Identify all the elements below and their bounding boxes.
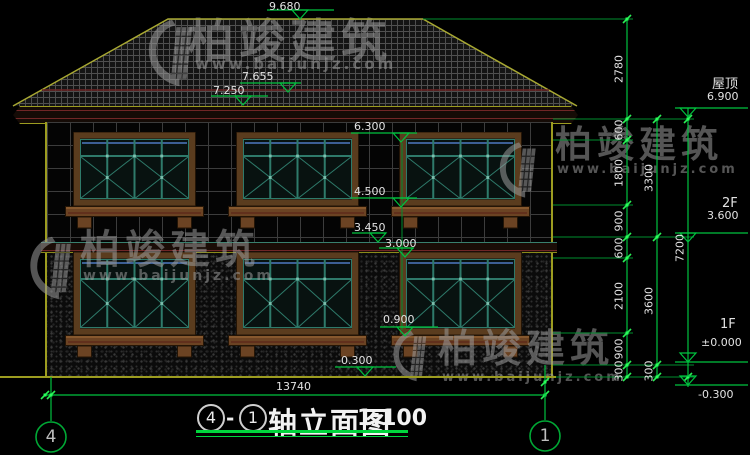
dimension-value: 300 bbox=[644, 361, 655, 382]
dimension-value: 900 bbox=[614, 339, 625, 360]
dimension-value: 2100 bbox=[614, 282, 625, 310]
dimension-value: 900 bbox=[614, 211, 625, 232]
elevation-value: 9.680 bbox=[269, 1, 301, 12]
title-axis-separator: - bbox=[226, 406, 234, 430]
dimension-value: 600 bbox=[614, 119, 625, 140]
elevation-value: 7.655 bbox=[242, 71, 274, 82]
dimension-value: 3300 bbox=[644, 164, 655, 192]
title-axis-end-bubble: 1 bbox=[239, 404, 267, 432]
axis-bubble-1-label: 1 bbox=[540, 426, 551, 446]
title-axis-start-bubble: 4 bbox=[197, 404, 225, 432]
dimension-value: 13740 bbox=[276, 381, 311, 392]
elevation-value: 6.300 bbox=[354, 121, 386, 132]
elevation-value: 7.250 bbox=[213, 85, 245, 96]
dimension-value: 1800 bbox=[614, 159, 625, 187]
title-underline-thin bbox=[196, 436, 408, 437]
elevation-value: ±0.000 bbox=[701, 337, 742, 348]
dimension-value: 3600 bbox=[644, 287, 655, 315]
elevation-value: 6.900 bbox=[707, 91, 739, 102]
elevation-value: -0.300 bbox=[698, 389, 733, 400]
elevation-value: -0.300 bbox=[337, 355, 372, 366]
elevation-drawing-canvas: 柏竣建筑www.baijunjz.com 柏竣建筑www.baijunjz.co… bbox=[0, 0, 750, 455]
elevation-value: 3.000 bbox=[385, 238, 417, 249]
elevation-value: 4.500 bbox=[354, 186, 386, 197]
dimension-value: 600 bbox=[614, 237, 625, 258]
elevation-value: 3.600 bbox=[707, 210, 739, 221]
dimension-value: 2780 bbox=[614, 55, 625, 83]
dimension-value: 7200 bbox=[675, 234, 686, 262]
elevation-value: 3.450 bbox=[354, 222, 386, 233]
title-underline-thick bbox=[196, 430, 408, 433]
dimension-value: 300 bbox=[614, 361, 625, 382]
drawing-scale: 1:100 bbox=[357, 406, 427, 431]
elevation-value: 0.900 bbox=[383, 314, 415, 325]
level-name: 1F bbox=[720, 318, 736, 331]
axis-bubble-4-label: 4 bbox=[46, 427, 57, 447]
